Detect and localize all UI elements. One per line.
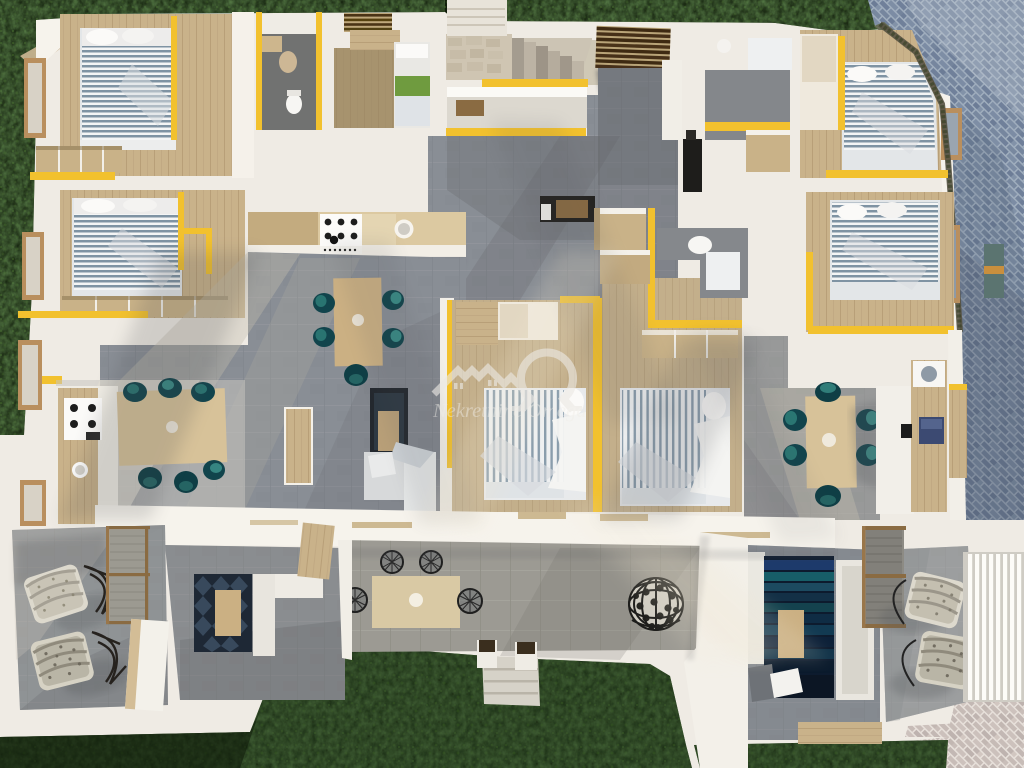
svg-text:Nekretnine Omega: Nekretnine Omega xyxy=(432,400,587,422)
